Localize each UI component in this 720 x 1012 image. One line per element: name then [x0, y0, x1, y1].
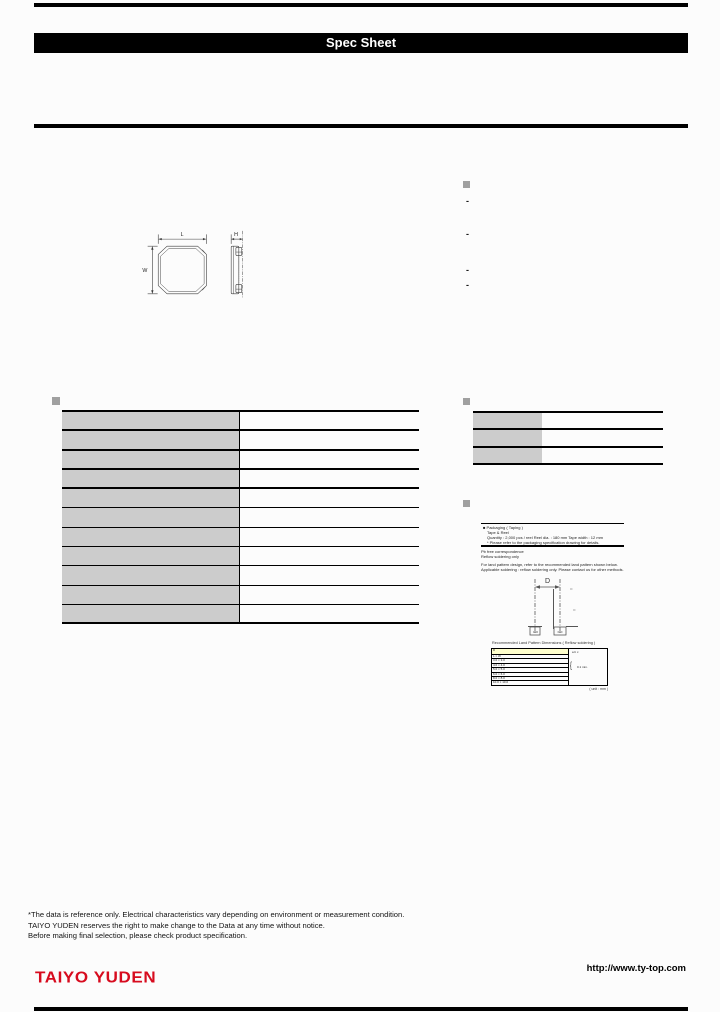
- table-row: [62, 508, 419, 527]
- title-banner: Spec Sheet: [34, 33, 688, 53]
- spec-value-cell: [240, 412, 419, 429]
- land-pattern-diagram: D: [515, 574, 595, 638]
- bottom-rule: [34, 1007, 688, 1011]
- info-table: [473, 411, 663, 465]
- dim-label-l: L: [181, 232, 184, 238]
- spec-value-cell: [240, 470, 419, 487]
- packaging-note-line: Applicable soldering : reflow soldering …: [481, 567, 659, 572]
- table-row: [62, 470, 419, 489]
- land-table-left-column: D L × W 3.0 × 3.0 4.0 × 4.0 5.0 × 5.0 6.…: [492, 649, 569, 685]
- land-head-values: a b c: [572, 650, 579, 654]
- list-dash-marker: -: [466, 232, 469, 236]
- header-rule: [34, 124, 688, 128]
- spec-label-cell: [62, 470, 240, 487]
- spec-value-cell: [240, 451, 419, 468]
- brace-glyph: {: [570, 660, 572, 670]
- table-row: [62, 528, 419, 547]
- table-row: [473, 413, 663, 430]
- spec-label-cell: [62, 605, 240, 622]
- taiyo-yuden-logo: TAIYO YUDEN: [35, 969, 156, 987]
- spec-value-cell: [240, 586, 419, 604]
- spec-label-cell: [62, 451, 240, 468]
- spec-label-cell: [62, 489, 240, 507]
- spec-value-cell: [240, 489, 419, 507]
- table-row: [473, 448, 663, 465]
- packaging-note-line: Reflow soldering only: [481, 554, 659, 559]
- spec-value-cell: [240, 528, 419, 546]
- info-label-cell: [473, 448, 542, 463]
- spec-value-cell: [240, 431, 419, 448]
- packaging-note-box: ■ Packaging ( Taping ) Tape & Reel Quant…: [481, 523, 624, 547]
- note-box-line: * Please refer to the packaging specific…: [483, 540, 622, 545]
- spec-value-cell: [240, 508, 419, 526]
- info-value-cell: [542, 430, 663, 445]
- table-row: [62, 605, 419, 624]
- table-row: [62, 547, 419, 566]
- info-section-bullet: [463, 398, 470, 405]
- table-row: [62, 489, 419, 508]
- unit-note: ( unit : mm ): [556, 687, 608, 691]
- table-row: [473, 430, 663, 447]
- spec-label-cell: [62, 431, 240, 448]
- info-label-cell: [473, 430, 542, 445]
- footer-note-line: TAIYO YUDEN reserves the right to make c…: [28, 921, 404, 932]
- list-dash-marker: -: [466, 268, 469, 272]
- spec-label-cell: [62, 412, 240, 429]
- packaging-section-bullet: [463, 500, 470, 507]
- spec-value-cell: [240, 547, 419, 565]
- top-rule: [34, 3, 688, 7]
- spec-label-cell: [62, 528, 240, 546]
- spec-section-bullet: [52, 397, 60, 405]
- spec-label-cell: [62, 586, 240, 604]
- table-row: [62, 431, 419, 450]
- info-value-cell: [542, 413, 663, 428]
- table-row: [62, 451, 419, 470]
- info-label-cell: [473, 413, 542, 428]
- land-merged-value: 0.1 min.: [577, 665, 588, 669]
- land-pattern-caption: Recommended Land Pattern Dimensions ( Re…: [492, 641, 622, 645]
- table-row: [62, 586, 419, 605]
- footer-notes: *The data is reference only. Electrical …: [28, 910, 404, 942]
- land-row: 10.0 × 10.0: [492, 681, 568, 686]
- spec-label-cell: [62, 547, 240, 565]
- spec-table: [62, 410, 419, 624]
- company-url-link[interactable]: http://www.ty-top.com: [480, 963, 686, 974]
- packaging-notes: Pb free correspondence Reflow soldering …: [481, 549, 659, 572]
- spec-value-cell: [240, 605, 419, 622]
- dimension-drawing: L W H: [140, 195, 340, 335]
- page-title: Spec Sheet: [326, 35, 396, 50]
- spec-value-cell: [240, 566, 419, 584]
- footer-note-line: Before making final selection, please ch…: [28, 931, 404, 942]
- info-value-cell: [542, 448, 663, 463]
- land-dim-label-d: D: [545, 578, 550, 585]
- list-dash-marker: -: [466, 199, 469, 203]
- footer-note-line: *The data is reference only. Electrical …: [28, 910, 404, 921]
- table-row: [62, 412, 419, 431]
- table-row: [62, 566, 419, 585]
- spec-label-cell: [62, 508, 240, 526]
- spec-label-cell: [62, 566, 240, 584]
- land-pattern-table: D L × W 3.0 × 3.0 4.0 × 4.0 5.0 × 5.0 6.…: [491, 648, 608, 686]
- features-section-bullet: [463, 181, 470, 188]
- list-dash-marker: -: [466, 283, 469, 287]
- land-table-right-column: a b c { 0.1 min.: [569, 649, 607, 685]
- dim-label-h: H: [234, 232, 238, 238]
- spec-sheet-page: Spec Sheet: [0, 0, 720, 1012]
- dim-label-w: W: [142, 268, 147, 274]
